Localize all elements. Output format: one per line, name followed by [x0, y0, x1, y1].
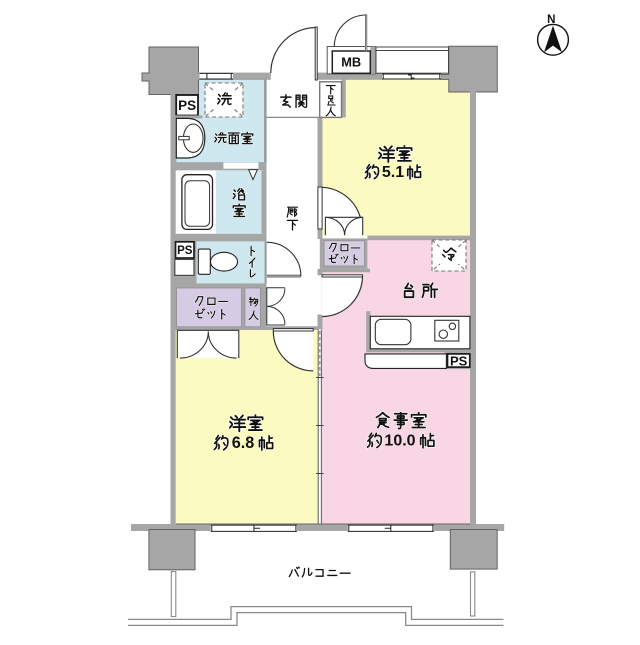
svg-text:PS: PS — [178, 98, 196, 113]
svg-text:5.1: 5.1 — [382, 164, 404, 181]
svg-text:6.8: 6.8 — [232, 434, 255, 452]
svg-text:PS: PS — [450, 353, 468, 368]
svg-text:PS: PS — [177, 245, 193, 257]
svg-text:MB: MB — [341, 54, 361, 69]
svg-text:10.0: 10.0 — [384, 433, 415, 450]
svg-text:N: N — [547, 14, 555, 26]
